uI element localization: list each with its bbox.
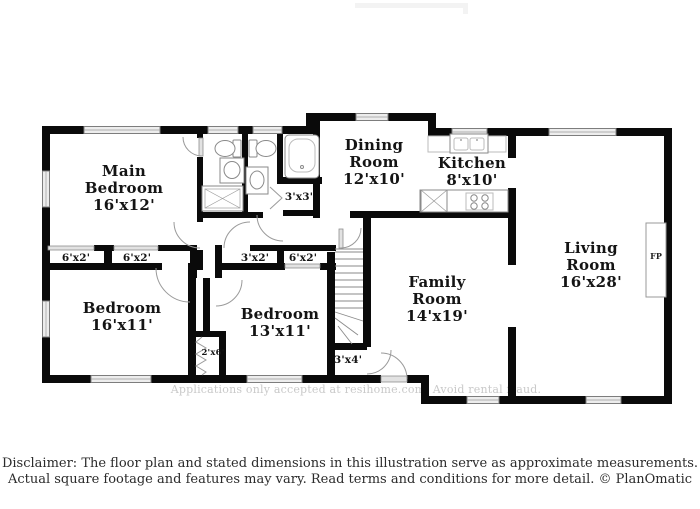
closet-label: 3'x2' — [241, 252, 269, 264]
room-name: Living — [560, 240, 622, 257]
room-dims: 16'x12' — [85, 197, 164, 214]
closet-label: 2'x6' — [201, 348, 224, 358]
room-name: Kitchen — [438, 155, 506, 172]
room-label-kitchen: Kitchen 8'x10' — [438, 155, 506, 189]
disclaimer-line-2: Actual square footage and features may v… — [0, 472, 700, 488]
room-name: Room — [343, 154, 405, 171]
room-label-living-room: Living Room 16'x28' — [560, 240, 622, 291]
room-label-bedroom-1: Bedroom 16'x11' — [83, 300, 162, 334]
labels-layer: Main Bedroom 16'x12' Dining Room 12'x10'… — [0, 0, 700, 509]
room-dims: 14'x19' — [406, 308, 468, 325]
floor-plan-page: Applications only accepted at resihome.c… — [0, 0, 700, 509]
room-dims: 8'x10' — [438, 172, 506, 189]
room-name: Bedroom — [241, 306, 320, 323]
room-dims: 16'x28' — [560, 274, 622, 291]
disclaimer: Disclaimer: The floor plan and stated di… — [0, 456, 700, 487]
room-name: Bedroom — [85, 180, 164, 197]
room-label-bedroom-2: Bedroom 13'x11' — [241, 306, 320, 340]
room-label-family-room: Family Room 14'x19' — [406, 274, 468, 325]
room-name: Dining — [343, 137, 405, 154]
closet-label: 3'x3' — [285, 191, 313, 203]
room-name: Bedroom — [83, 300, 162, 317]
room-label-dining-room: Dining Room 12'x10' — [343, 137, 405, 188]
room-name: Room — [406, 291, 468, 308]
room-dims: 13'x11' — [241, 323, 320, 340]
closet-label: 6'x2' — [62, 252, 90, 264]
room-name: Room — [560, 257, 622, 274]
room-name: Family — [406, 274, 468, 291]
disclaimer-line-1: Disclaimer: The floor plan and stated di… — [0, 456, 700, 472]
closet-label: 6'x2' — [123, 252, 151, 264]
closet-label: 6'x2' — [289, 252, 317, 264]
room-name: Main — [85, 163, 164, 180]
fireplace-label: FP — [650, 251, 662, 261]
room-dims: 16'x11' — [83, 317, 162, 334]
closet-label: 3'x4' — [334, 354, 362, 366]
room-dims: 12'x10' — [343, 171, 405, 188]
room-label-main-bedroom: Main Bedroom 16'x12' — [85, 163, 164, 214]
